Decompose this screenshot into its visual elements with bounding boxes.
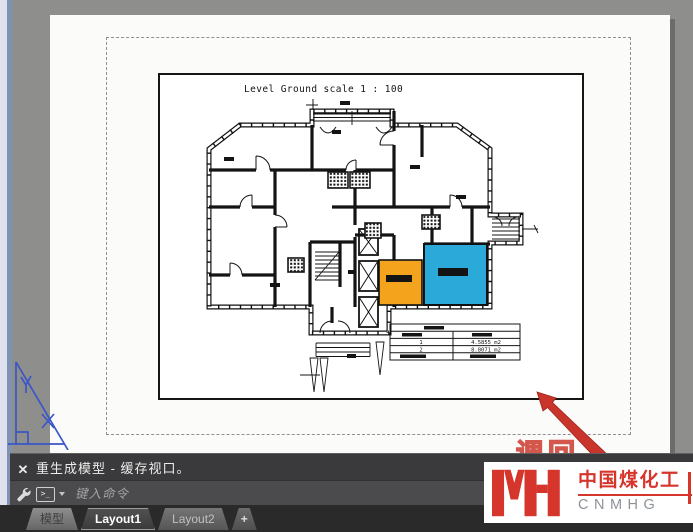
brand-name-cn: 中国煤化工 (578, 471, 692, 492)
ucs-icon (6, 358, 78, 450)
table-cell-area-1: 4.5855 m2 (471, 340, 501, 346)
table-cell-area-2: 8.8071 m2 (471, 347, 501, 353)
floorplan-svg: Level Ground scale 1 : 100 (160, 75, 582, 398)
wrench-icon[interactable] (10, 486, 36, 502)
stairs-core (315, 252, 339, 280)
drawing-title: Level Ground scale 1 : 100 (244, 84, 403, 95)
brand-name-en: CNMHG (578, 498, 692, 514)
command-prompt-icon[interactable]: >_ (36, 487, 55, 502)
command-history-text: 重生成模型 - 缓存视口。 (36, 458, 191, 477)
tab-layout2[interactable]: Layout2 (158, 508, 229, 530)
area-table: 1 4.5855 m2 2 8.8071 m2 (390, 324, 520, 360)
caret-down-icon[interactable] (59, 492, 65, 496)
dimension-mark (306, 99, 350, 109)
watermark-logo: 中国煤化工 CNMHG (484, 462, 693, 523)
add-layout-button[interactable]: + (232, 508, 257, 530)
mh-logo-icon (492, 469, 570, 517)
close-icon[interactable]: ✕ (10, 462, 36, 478)
table-cell-no-2: 2 (419, 347, 422, 353)
stairs-right (492, 219, 538, 239)
tab-model[interactable]: 模型 (26, 508, 78, 530)
viewport-frame[interactable]: Level Ground scale 1 : 100 (158, 73, 584, 400)
table-cell-no-1: 1 (419, 340, 422, 346)
brand-edge-mark (688, 472, 691, 504)
stairs-bottom (300, 342, 384, 392)
autocad-window: Level Ground scale 1 : 100 (0, 0, 693, 532)
brand-underline (578, 494, 692, 496)
orange-room (379, 260, 422, 305)
tab-layout1[interactable]: Layout1 (81, 508, 155, 530)
